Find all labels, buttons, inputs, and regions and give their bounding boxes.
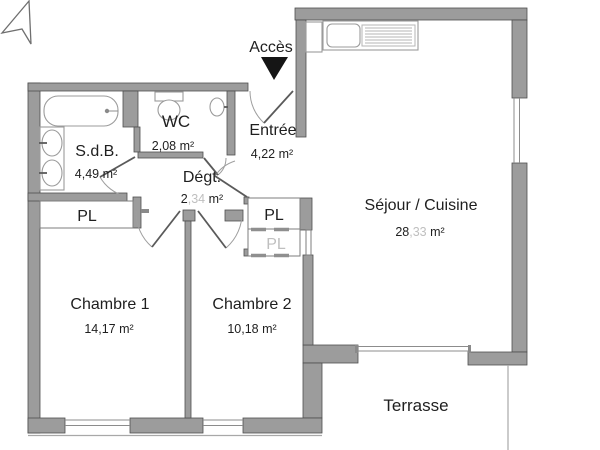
wall-bottom-b — [130, 418, 203, 433]
wc-hand-basin — [210, 98, 224, 116]
area-label-sejour: 28,33 m² — [395, 225, 444, 239]
wall-sdb-bottom — [28, 193, 127, 201]
door-entrance-arc — [250, 91, 264, 123]
door-entrance-leaf — [264, 91, 293, 123]
room-label-chambre1: Chambre 1 — [70, 296, 149, 313]
wall-chambre-divider — [185, 221, 191, 418]
wall-left-outer — [28, 83, 40, 433]
room-label-sejour: Séjour / Cuisine — [365, 197, 478, 214]
area-label-entree: 4,22 m² — [251, 147, 293, 161]
closet-label-chambre1: PL — [77, 208, 97, 225]
wall-stub-bottom-left — [303, 345, 358, 363]
wall-entree-sejour — [296, 20, 306, 137]
closets — [40, 198, 300, 256]
room-label-chambre2: Chambre 2 — [212, 296, 291, 313]
area-label-chambre1: 14,17 m² — [84, 322, 133, 336]
room-label-sdb: S.d.B. — [75, 143, 119, 160]
closet-label-chambre2: PL — [266, 236, 286, 253]
closet-label-entree: PL — [264, 207, 284, 224]
floor-plan-canvas: Accès Entrée 4,22 m² WC 2,08 m² S.d.B. 4… — [0, 0, 600, 450]
window-sejour-right — [514, 98, 520, 163]
wall-right-lower — [512, 163, 527, 352]
window-bay-nub-left — [355, 345, 358, 353]
window-chambre1 — [65, 420, 130, 426]
closet-chambre1-nub — [141, 209, 149, 213]
kitchen-sink-basin — [327, 24, 360, 47]
wall-wc-entree — [227, 91, 235, 155]
wall-sdb-wc-stub — [123, 91, 138, 127]
wall-sejour-top — [295, 8, 527, 20]
wall-closet2-right-thin — [306, 230, 311, 255]
room-label-entree: Entrée — [249, 122, 296, 139]
door-chambre2-leaf — [198, 211, 226, 248]
area-label-degt: 2,34 m² — [181, 192, 223, 206]
wall-wc-left — [134, 127, 140, 152]
wall-closet-sejour — [300, 198, 312, 230]
window-sejour-bay — [358, 347, 468, 352]
wall-chambre2-sejour — [303, 255, 313, 345]
wall-right-upper — [512, 20, 527, 98]
access-label: Accès — [249, 39, 293, 56]
area-label-chambre2: 10,18 m² — [227, 322, 276, 336]
door-chambre1-leaf — [152, 211, 180, 247]
window-chambre2 — [203, 420, 243, 426]
floor-plan: Accès Entrée 4,22 m² WC 2,08 m² S.d.B. 4… — [0, 0, 600, 450]
wall-top-left — [28, 83, 248, 91]
wall-stub-degt-center — [183, 210, 195, 221]
area-label-sdb: 4,49 m² — [75, 167, 117, 181]
wall-bottom-a — [28, 418, 65, 433]
room-label-terrasse: Terrasse — [383, 396, 448, 415]
window-bay-nub-right — [468, 345, 471, 353]
room-label-wc: WC — [162, 112, 190, 131]
room-label-degt: Dégt. — [183, 169, 221, 186]
access-arrow-icon — [261, 57, 288, 80]
north-arrow-icon — [2, 1, 31, 44]
bathtub-tap-dot — [105, 109, 109, 113]
wall-stub-bottom-right — [468, 352, 527, 365]
wall-terrasse-left — [303, 363, 322, 418]
wall-bottom-c — [243, 418, 322, 433]
area-label-wc: 2,08 m² — [152, 139, 194, 153]
wall-stub-degt-right — [225, 210, 243, 221]
kitchen-tall-unit — [306, 22, 322, 52]
